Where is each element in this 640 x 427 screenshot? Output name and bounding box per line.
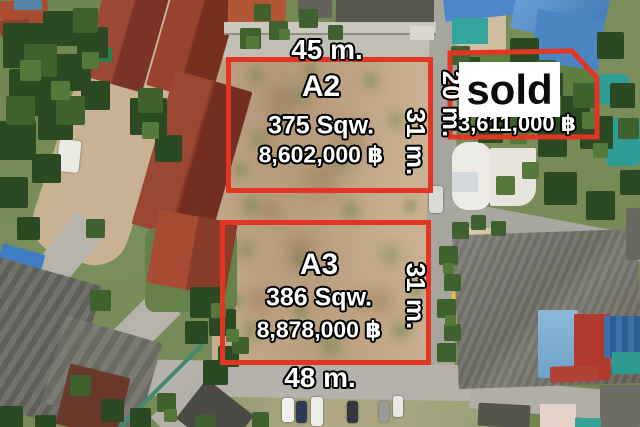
teal-canopy	[452, 18, 488, 44]
parked-car	[347, 401, 358, 423]
gray-roof	[477, 403, 530, 427]
parked-car	[379, 401, 389, 422]
plot-a2-depth-label: 31 m.	[403, 109, 429, 176]
plot-a3-name: A3	[300, 250, 338, 280]
plot-a2-name: A2	[302, 72, 340, 102]
plot-a3-depth-label: 31 m.	[403, 263, 429, 330]
pink-building	[540, 404, 576, 427]
white-hut	[410, 26, 434, 40]
plot-a2-width-label: 45 m.	[291, 36, 363, 64]
blue-roof	[14, 0, 42, 10]
white-building	[490, 148, 536, 206]
teal-pool	[575, 418, 601, 427]
gray-roof	[298, 0, 332, 18]
parked-car	[393, 396, 403, 417]
plot-a3-area: 386 Sqw.	[266, 286, 372, 311]
parked-van	[311, 397, 323, 426]
canopy	[452, 172, 478, 192]
parked-car	[296, 401, 307, 423]
white-van	[56, 139, 81, 173]
plot-a3-price: 8,878,000 ฿	[257, 319, 382, 342]
plot-a2-price: 8,602,000 ฿	[259, 144, 384, 167]
red-roof	[550, 365, 599, 383]
gray-roof	[626, 208, 640, 260]
plot-a2-area: 375 Sqw.	[268, 114, 374, 139]
sold-badge: sold	[459, 62, 560, 117]
parked-car	[282, 398, 294, 422]
aerial-land-listing: 45 m. A2 375 Sqw. 8,602,000 ฿ 31 m. 20 m…	[0, 0, 640, 427]
gray-roof	[600, 385, 640, 427]
red-roof	[0, 19, 31, 37]
plot-a3-width-label: 48 m.	[284, 364, 356, 392]
green-tarp	[96, 48, 112, 62]
sold-badge-label: sold	[466, 69, 552, 111]
teal-pool	[612, 352, 640, 374]
trees	[0, 0, 1, 1]
teal-pool	[606, 118, 640, 166]
